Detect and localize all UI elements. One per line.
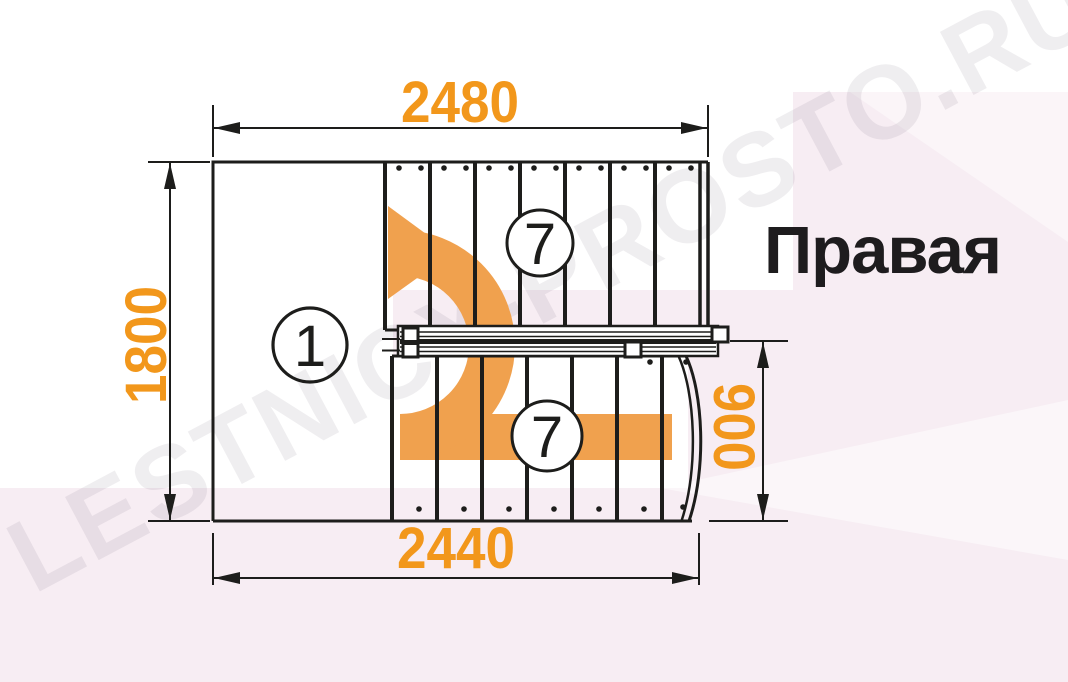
dim-arrow-right-icon: [672, 572, 698, 584]
dim-arrow-up-icon: [164, 163, 176, 189]
upper-flight-steps-value: 7: [524, 212, 556, 277]
dimension-right: 900: [701, 341, 788, 521]
turn-badge: 1: [273, 308, 347, 382]
dimension-left-value: 1800: [114, 286, 179, 404]
lower-flight-steps-badge: 7: [512, 401, 582, 471]
side-label: Правая: [764, 217, 1001, 284]
dim-arrow-up-icon: [757, 342, 769, 368]
beam-connector: [712, 327, 728, 342]
staircase-plan-page: LESTNICY-PROSTO.RU: [0, 0, 1068, 682]
lower-flight-curved-edge-inner: [679, 356, 693, 521]
dimension-top: 2480: [213, 70, 708, 157]
lower-flight-steps-value: 7: [531, 405, 563, 470]
beam-connector: [625, 342, 641, 357]
dim-arrow-down-icon: [164, 494, 176, 520]
landing-beam: [382, 326, 728, 357]
dimension-right-value: 900: [701, 383, 766, 471]
dimension-top-value: 2480: [401, 70, 519, 135]
dim-arrow-right-icon: [681, 122, 707, 134]
turn-badge-value: 1: [294, 314, 326, 379]
dim-arrow-down-icon: [757, 494, 769, 520]
dim-arrow-left-icon: [214, 572, 240, 584]
dim-arrow-left-icon: [214, 122, 240, 134]
dimension-bottom: 2440: [213, 516, 699, 585]
upper-flight-steps-badge: 7: [507, 210, 573, 277]
dimension-bottom-value: 2440: [397, 516, 515, 581]
beam-connector: [403, 328, 418, 342]
dimension-left: 1800: [114, 162, 210, 521]
upper-flight-screw-dots: [396, 165, 694, 171]
beam-connector: [403, 344, 418, 358]
staircase-plan-drawing: 1 7 7 2480 1800: [0, 0, 1068, 682]
